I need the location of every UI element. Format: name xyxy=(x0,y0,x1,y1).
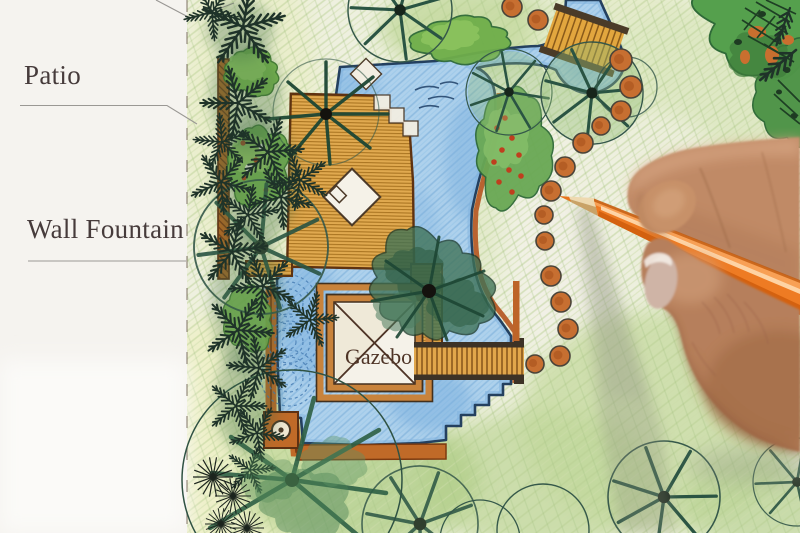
svg-text:Gazebo: Gazebo xyxy=(345,344,412,369)
svg-text:Wall Fountain: Wall Fountain xyxy=(27,214,184,244)
svg-text:Patio: Patio xyxy=(24,60,81,90)
